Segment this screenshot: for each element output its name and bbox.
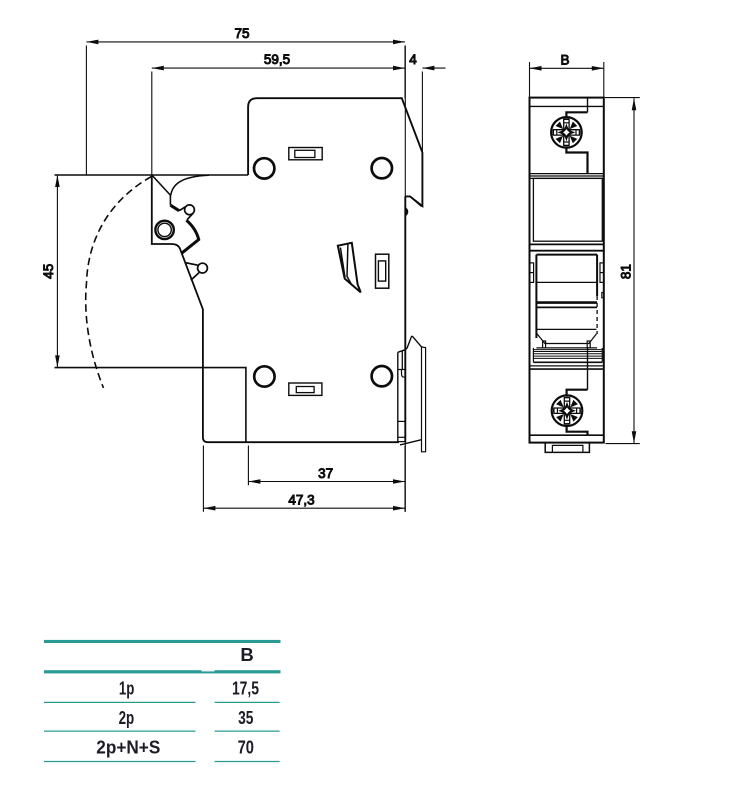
- svg-text:47,3: 47,3: [288, 492, 314, 507]
- svg-text:17,5: 17,5: [232, 678, 259, 699]
- svg-text:35: 35: [238, 707, 253, 728]
- svg-text:81: 81: [619, 264, 634, 279]
- svg-text:45: 45: [41, 264, 56, 279]
- svg-text:2p: 2p: [119, 707, 135, 728]
- svg-text:2p+N+S: 2p+N+S: [96, 737, 160, 758]
- svg-text:70: 70: [238, 737, 254, 758]
- svg-text:59,5: 59,5: [264, 52, 290, 67]
- svg-text:1p: 1p: [119, 678, 135, 699]
- svg-text:4: 4: [409, 52, 417, 67]
- svg-text:B: B: [560, 53, 569, 68]
- svg-text:75: 75: [234, 26, 249, 41]
- svg-text:37: 37: [318, 466, 333, 481]
- svg-text:B: B: [240, 644, 253, 665]
